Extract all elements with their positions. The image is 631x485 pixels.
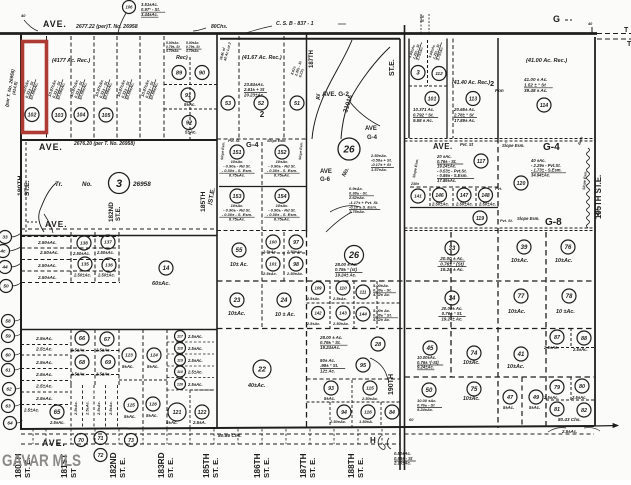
svg-text:1.57±Ac.: 1.57±Ac. [371, 167, 387, 172]
svg-text:9.58 ± Ac.: 9.58 ± Ac. [413, 118, 433, 123]
svg-text:109: 109 [315, 286, 323, 291]
svg-text:142: 142 [315, 311, 323, 316]
svg-text:24: 24 [280, 298, 288, 304]
svg-text:2.50±Ac.: 2.50±Ac. [97, 273, 115, 278]
svg-text:101: 101 [269, 262, 277, 267]
svg-text:2.5±Ac.: 2.5±Ac. [332, 296, 347, 301]
svg-text:Pvt. St: Pvt. St [460, 142, 474, 147]
svg-text:120: 120 [177, 382, 184, 386]
svg-text:102: 102 [28, 112, 37, 118]
svg-text:10±Ac.: 10±Ac. [463, 396, 480, 402]
svg-text:71: 71 [98, 436, 104, 442]
svg-text:G: G [553, 14, 560, 24]
svg-text:(41.67 Ac. Rec.): (41.67 Ac. Rec.) [242, 55, 282, 61]
svg-text:75: 75 [471, 387, 478, 393]
svg-text:2: 2 [260, 110, 265, 119]
svg-text:2.50±Ac.: 2.50±Ac. [37, 240, 57, 245]
svg-text:113: 113 [469, 96, 477, 102]
svg-text:33: 33 [2, 235, 8, 241]
svg-text:100: 100 [269, 240, 277, 245]
svg-text:183RD: 183RD [157, 452, 166, 478]
svg-text:2.5±Ac.: 2.5±Ac. [85, 401, 90, 416]
svg-text:195TH ST.E.: 195TH ST.E. [594, 175, 603, 219]
svg-text:65: 65 [54, 410, 61, 416]
svg-text:ST. E.: ST. E. [308, 458, 317, 478]
svg-text:G-4: G-4 [246, 140, 259, 149]
svg-text:2.5±Ac.: 2.5±Ac. [35, 360, 53, 366]
svg-text:17.85±Ac.: 17.85±Ac. [437, 178, 456, 183]
svg-text:2.5±Ac.: 2.5±Ac. [70, 348, 86, 353]
svg-text:187TH: 187TH [309, 50, 315, 68]
svg-text:40: 40 [419, 19, 424, 23]
svg-text:G-4: G-4 [543, 142, 560, 153]
svg-text:2: 2 [490, 79, 494, 88]
svg-text:Pvt. St.: Pvt. St. [228, 139, 240, 143]
svg-text:120: 120 [517, 181, 526, 187]
svg-text:185TH: 185TH [202, 453, 211, 478]
svg-text:154: 154 [278, 194, 287, 200]
svg-text:2.50±Ac.: 2.50±Ac. [96, 250, 114, 255]
svg-text:10± Ac.: 10± Ac. [230, 262, 248, 268]
svg-text:98: 98 [293, 262, 299, 268]
svg-text:9.24±Ac.: 9.24±Ac. [417, 365, 434, 370]
svg-text:66: 66 [79, 336, 86, 342]
svg-text:69: 69 [105, 360, 112, 366]
svg-text:AVE: AVE [365, 126, 377, 132]
svg-text:AVE.: AVE. [43, 19, 67, 29]
svg-text:2676.20 (per T. No. 26958): 2676.20 (per T. No. 26958) [73, 141, 135, 147]
svg-text:50: 50 [3, 284, 9, 290]
svg-text:77: 77 [518, 294, 525, 300]
svg-text:45: 45 [426, 346, 434, 352]
svg-text:19.24 ± Ac.: 19.24 ± Ac. [440, 267, 464, 272]
svg-text:2.50±Ac.: 2.50±Ac. [39, 250, 59, 255]
svg-text:90: 90 [199, 71, 206, 77]
svg-text:2677.22 (per)T. No. 26958: 2677.22 (per)T. No. 26958 [75, 24, 138, 30]
svg-text:9.24±Ac.: 9.24±Ac. [417, 407, 433, 412]
svg-text:2.5±Ac.: 2.5±Ac. [187, 346, 203, 351]
svg-text:103: 103 [55, 113, 64, 119]
svg-text:2.5±Ac.: 2.5±Ac. [49, 420, 65, 425]
svg-text:188TH: 188TH [347, 453, 356, 478]
svg-text:1.52 ± ° St: 1.52 ± ° St [524, 83, 546, 88]
svg-text:112: 112 [435, 71, 443, 76]
svg-text:0.792 ° St.: 0.792 ° St. [413, 112, 434, 117]
svg-text:87: 87 [554, 335, 561, 341]
svg-text:143: 143 [339, 311, 347, 316]
svg-text:2.50±Ac.: 2.50±Ac. [361, 396, 378, 401]
svg-text:80Chs.: 80Chs. [211, 24, 227, 30]
svg-text:26958: 26958 [132, 181, 151, 188]
svg-text:117: 117 [477, 159, 486, 165]
svg-text:67: 67 [104, 337, 111, 343]
svg-text:125: 125 [127, 403, 135, 408]
svg-text:2.50±Ac.: 2.50±Ac. [332, 321, 349, 326]
svg-text:2.5±A.: 2.5±A. [192, 420, 206, 425]
svg-text:Slope Esm.: Slope Esm. [517, 216, 540, 221]
svg-text:T: T [627, 41, 631, 48]
svg-text:119: 119 [177, 358, 184, 362]
svg-text:55: 55 [236, 248, 243, 254]
svg-text:10±Ac.: 10±Ac. [555, 258, 573, 264]
svg-text:4.70±Ac.: 4.70±Ac. [185, 49, 199, 53]
svg-text:76: 76 [565, 245, 572, 251]
svg-text:5±Ac.: 5±Ac. [122, 364, 134, 369]
svg-text:2.5±Ac.: 2.5±Ac. [95, 348, 111, 353]
svg-text:44: 44 [1, 265, 8, 271]
svg-text:ST.E.: ST.E. [24, 181, 31, 196]
svg-text:92: 92 [186, 121, 193, 127]
svg-text:122: 122 [198, 410, 207, 416]
svg-text:2.5±Ac.: 2.5±Ac. [70, 372, 86, 377]
svg-text:2.5±Ac.: 2.5±Ac. [187, 334, 203, 339]
svg-text:49: 49 [532, 395, 539, 401]
svg-text:AVE. G-2: AVE. G-2 [322, 91, 349, 98]
svg-text:3.44±Ac.: 3.44±Ac. [141, 12, 158, 17]
svg-text:94: 94 [341, 410, 347, 416]
svg-text:53: 53 [225, 101, 231, 107]
svg-text:2.5±Ac.: 2.5±Ac. [187, 370, 203, 375]
svg-text:180TH: 180TH [17, 176, 24, 196]
svg-text:2.5±Ac.: 2.5±Ac. [187, 382, 203, 387]
svg-text:118: 118 [177, 346, 184, 350]
svg-text:62: 62 [6, 387, 12, 393]
svg-text:2.5±Ac.: 2.5±Ac. [306, 297, 320, 301]
svg-text:(4177 Ac. Rec.): (4177 Ac. Rec.) [52, 58, 90, 64]
svg-text:AVE.: AVE. [42, 438, 66, 448]
svg-text:104: 104 [77, 112, 86, 118]
svg-text:123: 123 [125, 353, 133, 358]
svg-text:152: 152 [278, 150, 287, 156]
svg-text:230±: 230± [410, 182, 419, 186]
svg-text:ST. E.: ST. E. [211, 458, 220, 478]
svg-text:2.50±Ac.: 2.50±Ac. [37, 275, 57, 280]
svg-text:AVE: AVE [320, 169, 332, 175]
svg-text:5±Ac.: 5±Ac. [147, 364, 159, 369]
svg-text:2.50±Ac.: 2.50±Ac. [478, 202, 496, 207]
svg-text:93: 93 [328, 386, 334, 392]
svg-text:12± Ac.: 12± Ac. [320, 368, 335, 373]
svg-text:73: 73 [128, 438, 134, 444]
svg-text:138: 138 [80, 241, 88, 246]
svg-text:153: 153 [233, 194, 242, 200]
svg-text:2.5±Ac.: 2.5±Ac. [35, 396, 53, 402]
svg-text:2.5±Ac.: 2.5±Ac. [572, 347, 588, 352]
svg-text:(41.40 Ac. Rec.): (41.40 Ac. Rec.) [452, 80, 490, 86]
svg-text:10 ± Ac.: 10 ± Ac. [275, 312, 296, 318]
svg-text:8.75±Ac.: 8.75±Ac. [229, 217, 245, 222]
svg-text:2.50±Ac.: 2.50±Ac. [329, 419, 346, 424]
svg-text:141: 141 [414, 194, 422, 199]
svg-text:0.76± ° (St): 0.76± ° (St) [440, 261, 464, 266]
svg-text:88: 88 [581, 336, 587, 342]
svg-text:2.5±Ac.: 2.5±Ac. [23, 408, 39, 413]
svg-text:136: 136 [105, 263, 113, 268]
svg-text:AVE.: AVE. [45, 220, 68, 229]
svg-text:AVE.: AVE. [433, 142, 453, 151]
svg-text:8.75±Ac.: 8.75±Ac. [274, 173, 290, 178]
svg-text:5±Ac.: 5±Ac. [503, 405, 514, 410]
svg-text:10 ±Ac.: 10 ±Ac. [556, 309, 575, 315]
svg-text:26: 26 [342, 145, 355, 156]
svg-text:40: 40 [20, 13, 26, 18]
svg-text:74: 74 [471, 351, 478, 357]
svg-text:182ND: 182ND [108, 202, 115, 222]
svg-text:4.62± Ac.: 4.62± Ac. [372, 317, 390, 322]
svg-text:82: 82 [581, 408, 587, 414]
svg-text:34: 34 [449, 296, 456, 302]
svg-text:C. S. B - 837 - 1: C. S. B - 837 - 1 [276, 21, 314, 27]
svg-text:26: 26 [348, 250, 360, 260]
svg-text:110: 110 [339, 286, 347, 291]
svg-text:T: T [624, 27, 629, 34]
svg-text:2.50±Ac.: 2.50±Ac. [286, 249, 303, 254]
svg-text:115: 115 [366, 386, 374, 392]
svg-text:10±Ac.: 10±Ac. [463, 360, 480, 366]
svg-text:2.50±Ac.: 2.50±Ac. [286, 271, 303, 276]
svg-text:84: 84 [389, 410, 395, 416]
svg-text:Pon: Pon [495, 88, 504, 93]
svg-text:3: 3 [116, 178, 122, 190]
svg-text:80.86 Chs.: 80.86 Chs. [218, 433, 242, 439]
svg-text:114: 114 [540, 103, 548, 109]
svg-text:60±Ac.: 60±Ac. [152, 281, 170, 287]
svg-text:126: 126 [149, 402, 157, 407]
svg-text:2.76± ° St: 2.76± ° St [453, 112, 474, 117]
svg-text:101: 101 [428, 96, 437, 102]
svg-text:60: 60 [5, 353, 11, 359]
svg-text:23: 23 [233, 298, 241, 304]
svg-text:190TH: 190TH [388, 374, 395, 395]
svg-text:119: 119 [476, 216, 484, 222]
svg-text:80.43 Chs.: 80.43 Chs. [558, 417, 581, 422]
svg-text:ST. E.: ST. E. [118, 458, 127, 478]
svg-text:(41.00 Ac. Rec.): (41.00 Ac. Rec.) [526, 58, 567, 64]
svg-text:ST. E.: ST. E. [356, 458, 365, 478]
svg-text:70: 70 [78, 438, 84, 444]
svg-text:2.10±Ac.: 2.10±Ac. [393, 461, 411, 466]
svg-text:63: 63 [5, 404, 11, 410]
svg-text:2.5±Ac.: 2.5±Ac. [35, 347, 53, 353]
svg-text:68: 68 [79, 360, 86, 366]
svg-text:148: 148 [481, 193, 490, 199]
svg-text:58: 58 [5, 319, 11, 325]
svg-text:5±Ac.: 5±Ac. [185, 130, 197, 135]
svg-text:19.24± Ac.: 19.24± Ac. [441, 316, 462, 321]
svg-text:2.50±Ac.: 2.50±Ac. [455, 202, 473, 207]
svg-text:19.24± Ac.: 19.24± Ac. [335, 272, 356, 277]
svg-text:105: 105 [102, 113, 111, 119]
svg-text:2.5±Ac.: 2.5±Ac. [262, 249, 277, 254]
svg-text:40±Ac.: 40±Ac. [247, 383, 266, 389]
svg-text:2.5±Ac.: 2.5±Ac. [561, 429, 577, 434]
svg-text:39.48 ± Ac.: 39.48 ± Ac. [524, 88, 548, 93]
svg-text:2.50±Ac.: 2.50±Ac. [37, 263, 57, 268]
svg-text:64: 64 [7, 421, 13, 427]
svg-text:79: 79 [554, 385, 560, 391]
svg-text:2.50±Ac.: 2.50±Ac. [431, 202, 449, 207]
svg-text:95: 95 [360, 363, 367, 369]
svg-text:72: 72 [98, 453, 104, 459]
svg-text:28: 28 [374, 342, 382, 348]
svg-text:8.75±Ac.: 8.75±Ac. [274, 217, 290, 222]
svg-text:2.5±Ac.: 2.5±Ac. [35, 372, 53, 378]
svg-text:5±Ac.: 5±Ac. [529, 405, 540, 410]
svg-text:10±Ac.: 10±Ac. [508, 309, 526, 315]
svg-text:5±Ac.: 5±Ac. [166, 420, 178, 425]
svg-text:19.24±Ac.: 19.24±Ac. [320, 345, 340, 350]
svg-text:GAVAR MLS: GAVAR MLS [2, 451, 81, 470]
svg-text:50: 50 [426, 388, 433, 394]
svg-text:144: 144 [359, 312, 367, 317]
svg-text:81: 81 [554, 407, 560, 413]
svg-text:121: 121 [173, 410, 182, 416]
svg-text:5±Ac.: 5±Ac. [324, 396, 335, 401]
svg-text:4.70±Ac.: 4.70±Ac. [165, 49, 179, 53]
svg-text:117: 117 [177, 334, 184, 338]
svg-text:No.: No. [82, 181, 92, 188]
svg-text:ST. E.: ST. E. [166, 458, 175, 478]
svg-text:5±Ac.: 5±Ac. [184, 102, 196, 107]
svg-text:AVE.: AVE. [39, 142, 63, 152]
svg-text:10±Ac.: 10±Ac. [507, 364, 525, 370]
svg-text:22: 22 [257, 367, 266, 374]
svg-text:52: 52 [258, 101, 265, 107]
svg-text:91: 91 [185, 93, 191, 99]
svg-text:151: 151 [233, 150, 242, 156]
svg-text:10.371 Ac.: 10.371 Ac. [413, 107, 434, 112]
svg-text:187TH: 187TH [299, 453, 308, 478]
svg-text:111: 111 [360, 290, 367, 295]
svg-text:147: 147 [460, 193, 469, 199]
svg-text:10±Ac.: 10±Ac. [511, 258, 529, 264]
svg-text:185TH: 185TH [200, 192, 207, 212]
svg-text:137: 137 [104, 240, 112, 245]
svg-text:Slope Esm.: Slope Esm. [267, 139, 286, 143]
svg-text:2.5±Ac.: 2.5±Ac. [571, 395, 587, 400]
svg-text:4.62± Ac.: 4.62± Ac. [372, 292, 390, 297]
svg-text:2.5±Ac.: 2.5±Ac. [35, 384, 53, 390]
svg-text:80: 80 [579, 384, 585, 390]
svg-text:Pvt. St.: Pvt. St. [500, 219, 513, 223]
svg-text:2.5±Ac.: 2.5±Ac. [95, 372, 111, 377]
svg-text:186TH: 186TH [253, 453, 262, 478]
svg-text:41: 41 [517, 352, 525, 358]
svg-text:14: 14 [163, 266, 170, 272]
svg-text:2.5±Ac.: 2.5±Ac. [73, 401, 78, 416]
svg-text:5±Ac.: 5±Ac. [124, 414, 136, 419]
svg-text:110: 110 [177, 370, 184, 374]
svg-text:2.5±Ac.: 2.5±Ac. [96, 401, 101, 416]
svg-text:H: H [370, 436, 376, 445]
svg-text:Pvt.: Pvt. [495, 187, 502, 191]
svg-text:2.5±Ac.: 2.5±Ac. [262, 271, 277, 276]
svg-text:2.5±Ac.: 2.5±Ac. [35, 336, 53, 342]
svg-text:20.23±Ac.: 20.23±Ac. [243, 92, 264, 97]
svg-text:2.5±Ac.: 2.5±Ac. [187, 358, 203, 363]
svg-text:10±Ac.: 10±Ac. [228, 311, 246, 317]
svg-text:2.50±Ac.: 2.50±Ac. [73, 273, 91, 278]
svg-text:2.5±Ac.: 2.5±Ac. [543, 395, 559, 400]
svg-text:41.00 ± Ac.: 41.00 ± Ac. [523, 77, 548, 82]
svg-text:2.5±Ac.: 2.5±Ac. [108, 401, 113, 416]
svg-text:ST.E.: ST.E. [389, 59, 396, 76]
svg-text:106: 106 [126, 5, 134, 10]
svg-text:8.75±Ac.: 8.75±Ac. [229, 173, 245, 178]
svg-text:2.50±Ac.: 2.50±Ac. [72, 251, 90, 256]
svg-text:182ND: 182ND [109, 452, 118, 478]
svg-text:89: 89 [176, 71, 183, 77]
svg-text:61: 61 [5, 368, 11, 374]
svg-text:G-8: G-8 [545, 217, 562, 228]
svg-text:39: 39 [521, 245, 528, 251]
svg-text:Rec): Rec) [176, 55, 188, 61]
svg-text:34.94±Ac.: 34.94±Ac. [531, 172, 550, 177]
svg-text:40: 40 [587, 22, 593, 26]
svg-text:7.75±Ac.: 7.75±Ac. [349, 209, 365, 214]
svg-text:47: 47 [506, 395, 514, 401]
svg-text:2.5±Ac.: 2.5±Ac. [306, 322, 320, 326]
svg-text:ST. E.: ST. E. [262, 458, 271, 478]
svg-text:51: 51 [294, 101, 300, 107]
svg-text:116: 116 [364, 410, 372, 416]
svg-text:146: 146 [435, 193, 444, 199]
svg-text:2.5±Ac.: 2.5±Ac. [543, 345, 559, 350]
svg-text:17.89± Ac.: 17.89± Ac. [454, 118, 475, 123]
svg-text:20.65± Ac.: 20.65± Ac. [453, 107, 475, 112]
svg-text:5±Ac.: 5±Ac. [146, 413, 158, 418]
svg-text:4c: 4c [0, 249, 6, 255]
svg-text:60: 60 [409, 417, 414, 422]
svg-text:33: 33 [449, 246, 456, 252]
svg-text:78: 78 [566, 294, 573, 300]
svg-text:Tr.: Tr. [55, 181, 63, 188]
svg-text:G-4: G-4 [367, 135, 378, 141]
svg-text:G-6: G-6 [320, 177, 331, 183]
svg-text:124: 124 [150, 353, 158, 358]
svg-text:1.50±A.: 1.50±A. [359, 419, 373, 424]
svg-text:59: 59 [5, 334, 11, 340]
svg-text:ST.E.: ST.E. [116, 206, 122, 221]
svg-text:135: 135 [81, 262, 89, 267]
